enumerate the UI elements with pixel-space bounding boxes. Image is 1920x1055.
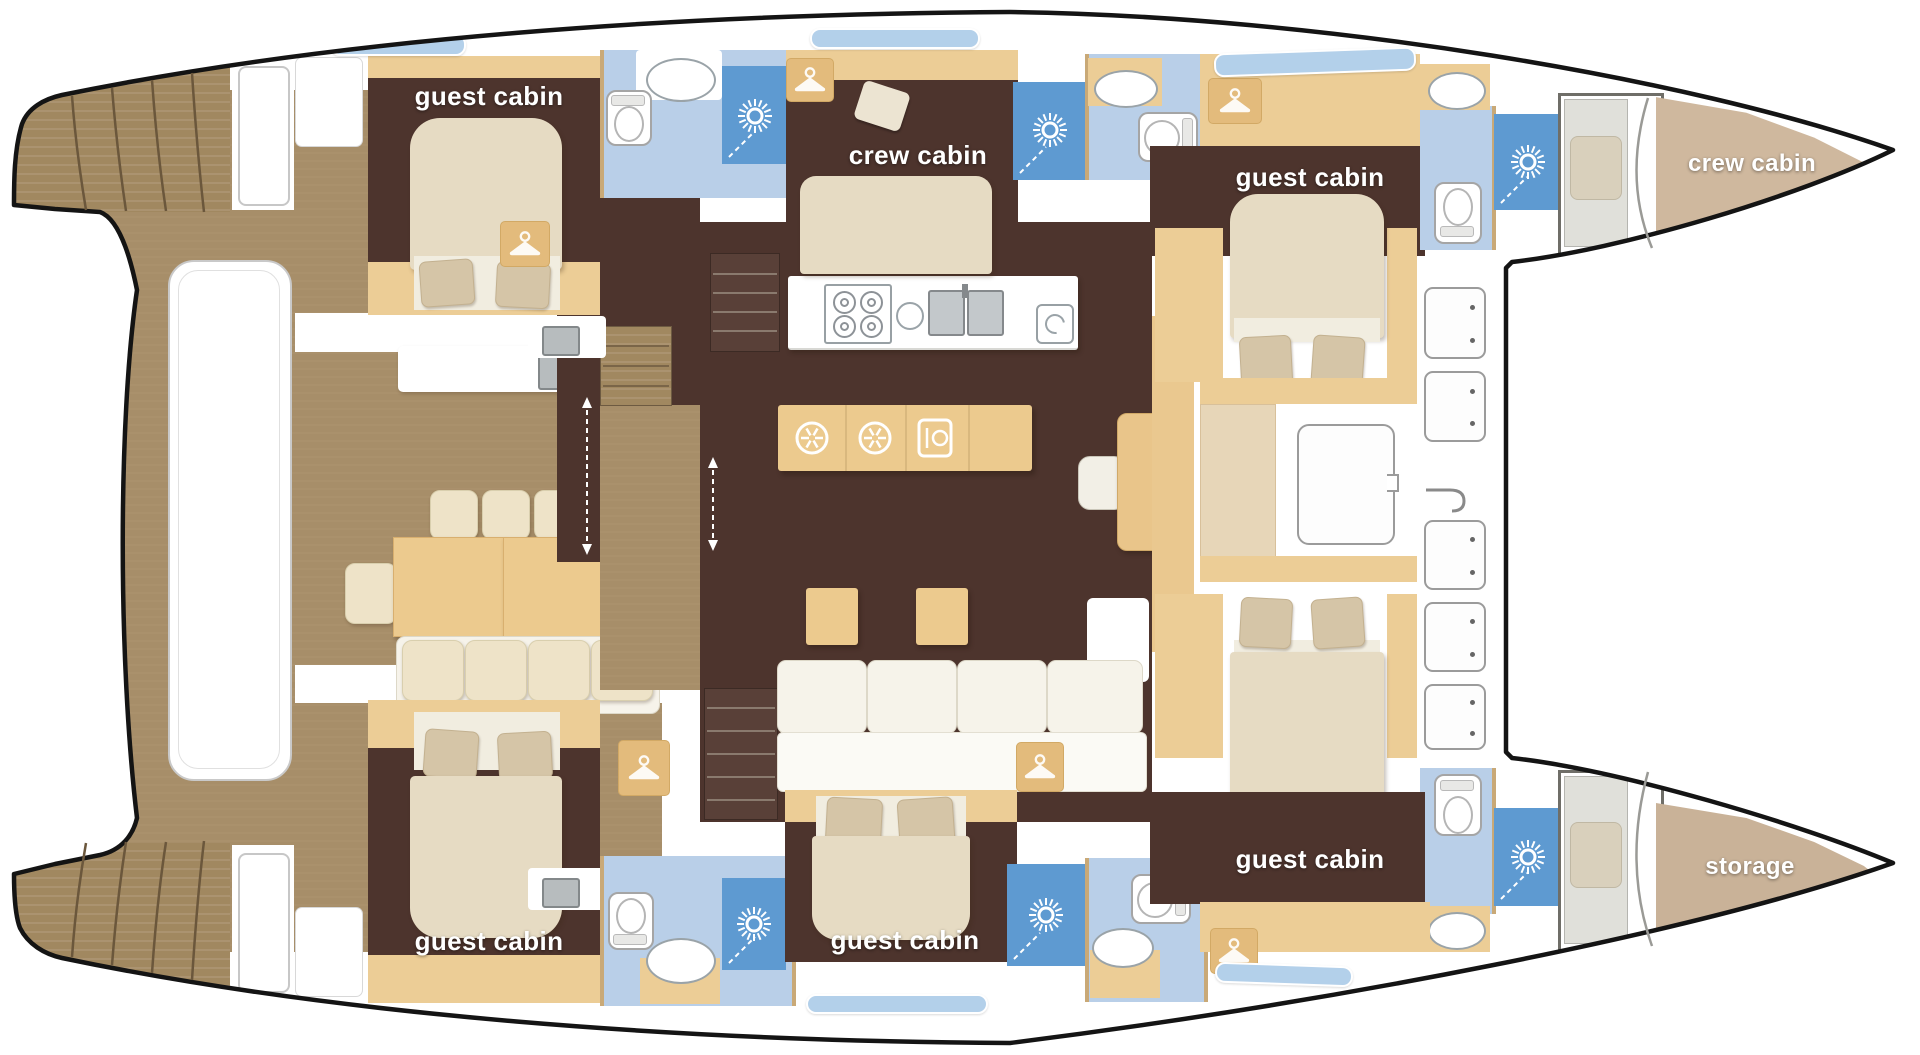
deck-locker xyxy=(1424,371,1486,442)
hull-window xyxy=(810,28,980,49)
dishwasher-icon xyxy=(917,418,953,458)
deck-locker xyxy=(1424,602,1486,672)
hanger-icon xyxy=(1208,78,1262,124)
bench-cushion xyxy=(528,640,590,701)
pillow xyxy=(495,261,551,310)
room-label: crew cabin xyxy=(1642,150,1862,178)
hanger-icon xyxy=(1016,742,1064,792)
room-label: guest cabin xyxy=(1200,844,1420,875)
foredeck-step xyxy=(1200,556,1417,582)
bench-cushion xyxy=(402,640,464,701)
pillow xyxy=(1570,136,1622,200)
pillow xyxy=(422,728,479,780)
helm-seat-top xyxy=(296,58,362,146)
salon-stairs-fwd xyxy=(710,253,780,352)
companionway-arrow-icon xyxy=(580,396,594,556)
double-bed xyxy=(1230,194,1384,338)
washbasin-icon xyxy=(1428,912,1486,950)
crew-bed xyxy=(800,176,992,274)
shower-top-aft xyxy=(722,66,788,164)
salon-side-table xyxy=(806,588,858,645)
dining-table-half xyxy=(393,537,505,637)
toilet-icon xyxy=(608,892,654,950)
sofa-back-cushion xyxy=(957,660,1047,734)
pillow xyxy=(497,731,553,782)
deck-locker xyxy=(1424,287,1486,359)
room-label: guest cabin xyxy=(795,925,1015,956)
pillow xyxy=(1570,822,1622,888)
yacht-floorplan: guest cabin crew cabin guest cabin crew … xyxy=(0,0,1920,1055)
shower-bow-bottom xyxy=(1494,808,1562,906)
deck-hook-icon xyxy=(1424,482,1470,514)
hanger-icon xyxy=(786,58,834,102)
dining-chair xyxy=(430,490,478,540)
toilet-icon xyxy=(606,90,652,146)
foredeck-seat xyxy=(1200,404,1276,558)
shower-bottom-fwd xyxy=(1007,864,1085,966)
cabin-shelf xyxy=(368,56,600,80)
galley-island xyxy=(778,405,1032,471)
shower-bow-top xyxy=(1494,114,1562,210)
deck-locker xyxy=(1424,684,1486,750)
berth-side xyxy=(1387,228,1417,382)
foredeck-step xyxy=(1200,378,1417,404)
toilet-icon xyxy=(1434,774,1482,836)
sofa-back-cushion xyxy=(1047,660,1143,734)
toilet-icon xyxy=(1434,182,1482,244)
icemaker-icon xyxy=(1036,304,1074,344)
companionway-arrow-icon xyxy=(706,456,720,552)
room-label: storage xyxy=(1640,853,1860,881)
vanity-sink-icon xyxy=(542,878,580,908)
room-label: guest cabin xyxy=(379,81,599,112)
snowflake-icon xyxy=(857,420,893,456)
berth-side xyxy=(1155,228,1223,382)
pillow xyxy=(1239,597,1294,650)
hull-steps-port xyxy=(600,326,672,406)
washbasin-icon xyxy=(1428,72,1486,110)
sofa-back-cushion xyxy=(777,660,867,734)
washbasin-icon xyxy=(1092,928,1154,968)
room-label: guest cabin xyxy=(379,926,599,957)
helm-seat-bottom xyxy=(296,908,362,996)
hull-window xyxy=(806,994,988,1014)
washbasin-icon xyxy=(646,58,716,102)
pillow xyxy=(418,258,475,308)
stove-burner-icon xyxy=(824,284,892,344)
aft-platform-inner xyxy=(178,270,280,769)
deck-locker xyxy=(1424,520,1486,590)
boarding-gate-top-panel xyxy=(238,66,290,206)
dining-chair-left xyxy=(345,563,397,624)
pillow xyxy=(1310,596,1365,650)
single-sink-icon xyxy=(896,302,924,330)
boarding-gate-bottom-panel xyxy=(238,853,290,993)
washbasin-icon xyxy=(646,938,716,984)
salon-stairs-aft xyxy=(704,688,778,820)
vanity-sink-icon xyxy=(542,326,580,356)
double-sink-icon xyxy=(928,288,1006,338)
hanger-icon xyxy=(500,221,550,267)
washbasin-icon xyxy=(1094,70,1158,108)
berth-side xyxy=(1155,594,1223,758)
sofa-seat xyxy=(777,732,1147,792)
salon-side-table xyxy=(916,588,968,645)
room-label: crew cabin xyxy=(808,140,1028,171)
snowflake-icon xyxy=(794,420,830,456)
room-label: guest cabin xyxy=(1200,162,1420,193)
bench-cushion xyxy=(465,640,527,701)
foredeck-hatch xyxy=(1297,424,1395,545)
salon-door-recess xyxy=(600,405,700,690)
double-bed xyxy=(410,776,562,938)
shower-bottom-aft xyxy=(722,878,786,970)
sofa-back-cushion xyxy=(867,660,957,734)
hanger-icon xyxy=(618,740,670,796)
hull-window xyxy=(1215,962,1354,988)
cabin-shelf xyxy=(368,955,600,1003)
dining-chair xyxy=(482,490,530,540)
berth-side xyxy=(1387,594,1417,758)
